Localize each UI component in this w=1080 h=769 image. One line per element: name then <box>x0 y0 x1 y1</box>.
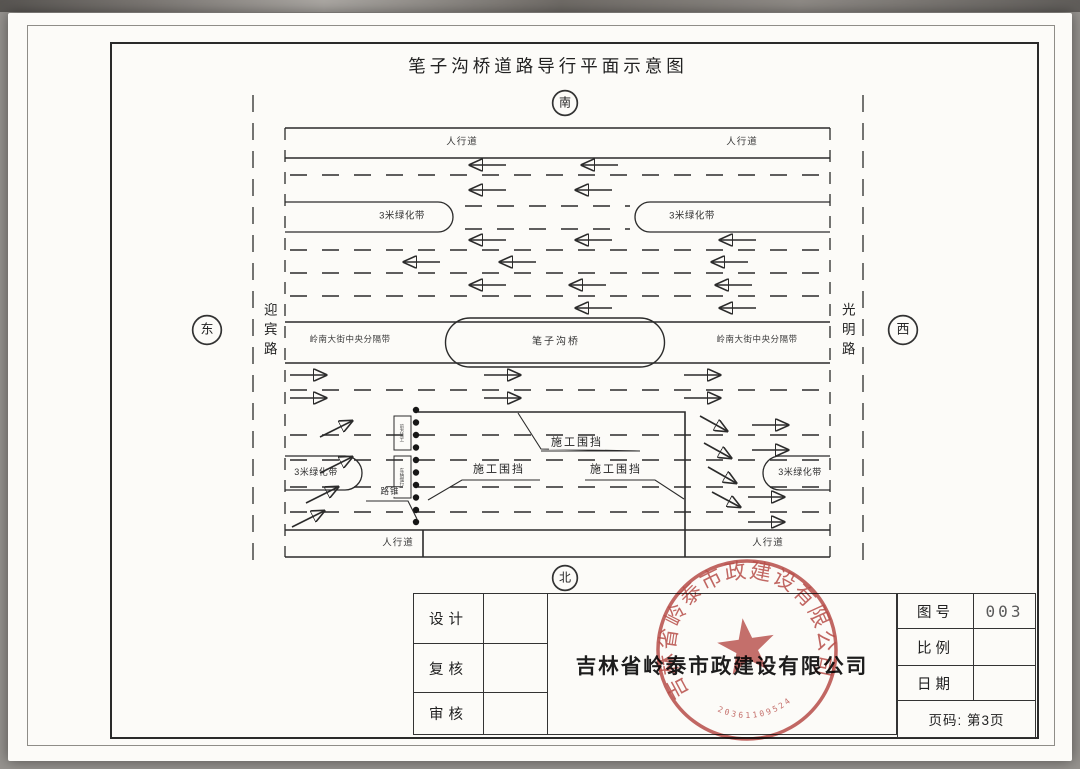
compass-north-label: 北 <box>559 571 571 585</box>
date-label: 日期 <box>898 666 974 701</box>
sidewalk-label-top-right: 人行道 <box>726 138 758 149</box>
photo-edge-artifact <box>0 0 1080 12</box>
green-belt-label-top-left: 3米绿化带 <box>379 212 425 223</box>
compass-south-icon: 南 <box>553 91 578 116</box>
scale-value <box>974 629 1036 666</box>
audit-label: 审核 <box>414 693 484 735</box>
compass-west-icon: 西 <box>889 316 918 345</box>
review-value <box>484 644 548 693</box>
compass-east-icon: 东 <box>193 316 222 345</box>
page-number: 页码: 第3页 <box>898 701 1036 738</box>
green-belt-label-top-right: 3米绿化带 <box>669 212 715 223</box>
road-name-left: 迎宾路 <box>261 303 277 362</box>
sidewalk-label-bottom-right: 人行道 <box>752 539 784 550</box>
review-label: 复核 <box>414 644 484 693</box>
enclosure-label-1: 施工围挡 <box>549 437 605 450</box>
design-value <box>484 594 548 644</box>
design-label: 设计 <box>414 594 484 644</box>
warning-sign-text-top: 前方施工 <box>399 424 405 442</box>
green-belt-label-bottom-left: 3米绿化带 <box>294 467 338 477</box>
company-name: 吉林省岭泰市政建设有限公司 <box>548 594 897 735</box>
audit-value <box>484 693 548 735</box>
enclosure-label-3: 施工围挡 <box>588 464 644 477</box>
median-label-left: 岭南大街中央分隔带 <box>309 335 390 345</box>
traffic-cone-label: 路锥 <box>380 487 399 497</box>
scale-label: 比例 <box>898 629 974 666</box>
compass-north-icon: 北 <box>553 566 578 591</box>
sidewalk-label-top-left: 人行道 <box>446 138 478 149</box>
compass-south-label: 南 <box>559 96 571 110</box>
title-block-info-table: 图号 003 比例 日期 页码: 第3页 <box>897 593 1036 738</box>
compass-east-label: 东 <box>200 323 213 338</box>
bridge-label: 笔子沟桥 <box>532 336 580 348</box>
warning-sign-text-bottom: 车辆慢行 <box>399 468 405 486</box>
compass-west-label: 西 <box>896 323 909 338</box>
median-label-right: 岭南大街中央分隔带 <box>716 335 797 345</box>
date-value <box>974 666 1036 701</box>
title-block-sign-table: 设计 复核 审核 <box>413 593 548 735</box>
drawing-title: 笔子沟桥道路导行平面示意图 <box>408 56 688 76</box>
drawing-no-value: 003 <box>974 594 1036 629</box>
green-belt-label-bottom-right: 3米绿化带 <box>778 467 822 477</box>
title-block-company-cell: 吉林省岭泰市政建设有限公司 <box>547 593 897 735</box>
scanned-drawing-page: 笔子沟桥道路导行平面示意图 南 北 东 西 迎宾路 光明路 人行道 人行道 人行… <box>0 0 1080 769</box>
enclosure-label-2: 施工围挡 <box>471 464 527 477</box>
road-name-right: 光明路 <box>839 303 855 362</box>
drawing-no-label: 图号 <box>898 594 974 629</box>
sidewalk-label-bottom-left: 人行道 <box>382 539 414 550</box>
